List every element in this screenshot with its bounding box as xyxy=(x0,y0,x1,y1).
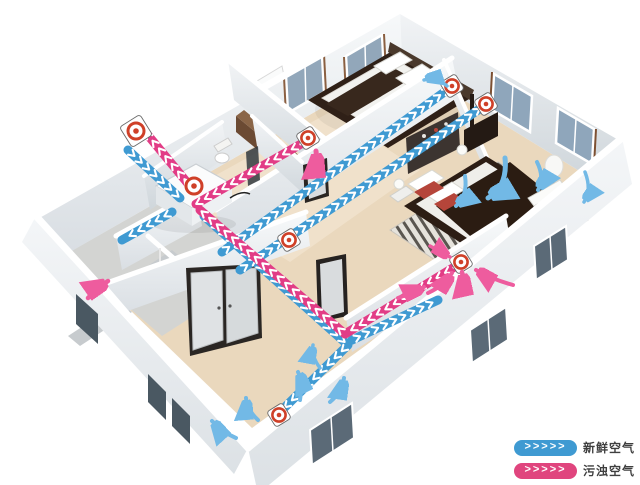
facade-window xyxy=(470,307,508,363)
polluted-air-band-icon: >>>>> xyxy=(514,463,577,479)
door-handle xyxy=(228,304,231,307)
table-lamp xyxy=(394,179,404,189)
airflow-arrow-bedroom1-extract xyxy=(316,151,319,174)
chevron-glyphs: >>>>> xyxy=(524,465,566,476)
floor-plan-illustration xyxy=(0,0,640,485)
legend: >>>>> 新鲜空气 >>>>> 污浊空气 xyxy=(514,439,635,479)
exterior-vent-icon xyxy=(119,114,152,147)
legend-item-fresh-air: >>>>> 新鲜空气 xyxy=(514,439,635,456)
unit-port-icon xyxy=(186,178,202,194)
legend-item-polluted-air: >>>>> 污浊空气 xyxy=(514,462,635,479)
fresh-air-band-icon: >>>>> xyxy=(514,440,577,456)
ventilation-diagram: >>>>> 新鲜空气 >>>>> 污浊空气 xyxy=(0,0,640,485)
door-handle xyxy=(217,306,220,309)
polluted-air-label: 污浊空气 xyxy=(583,462,635,479)
table-lamp xyxy=(457,145,467,155)
fresh-air-label: 新鲜空气 xyxy=(583,439,635,456)
chevron-glyphs: >>>>> xyxy=(524,442,566,453)
